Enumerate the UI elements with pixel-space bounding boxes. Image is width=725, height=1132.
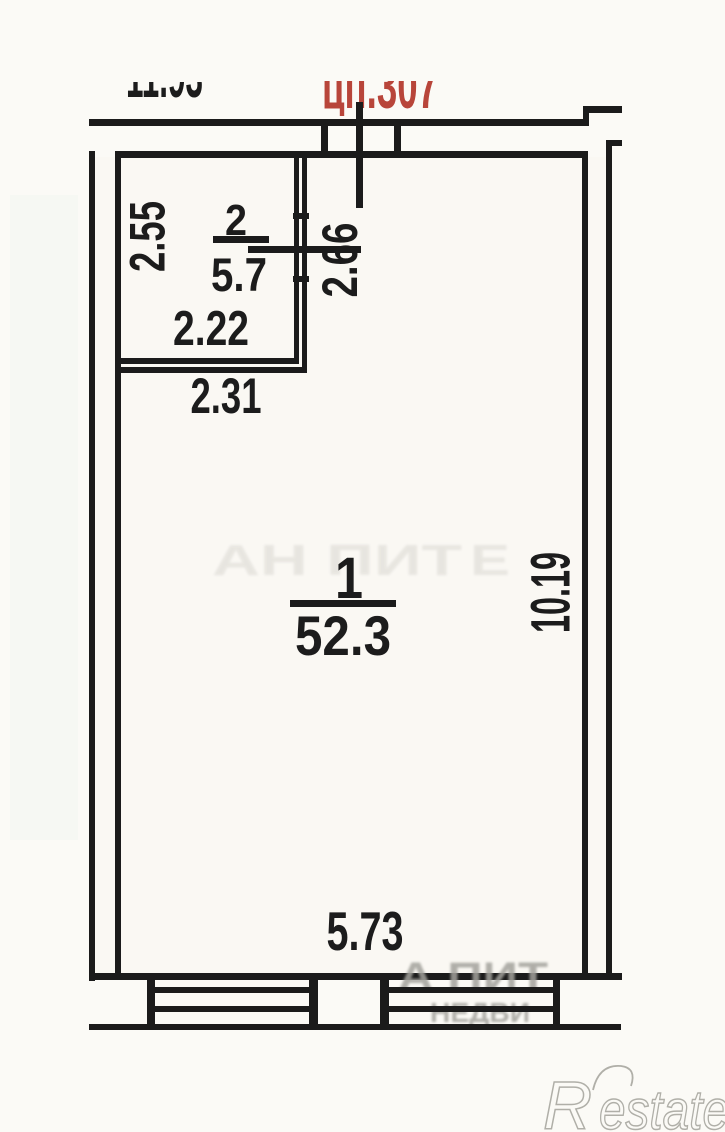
svg-text:НЕДВИ: НЕДВИ [430, 997, 530, 1028]
svg-text:R: R [543, 1068, 592, 1132]
svg-text:2.55: 2.55 [120, 201, 176, 272]
svg-text:Е: Е [470, 536, 510, 585]
svg-text:2.66: 2.66 [312, 223, 368, 298]
svg-text:2.31: 2.31 [191, 368, 262, 424]
svg-text:5.73: 5.73 [327, 900, 404, 962]
svg-text:2.22: 2.22 [173, 302, 249, 356]
svg-text:estate: estate [599, 1078, 725, 1132]
svg-text:52.3: 52.3 [295, 604, 391, 667]
svg-text:10.19: 10.19 [519, 552, 582, 633]
svg-text:5.7: 5.7 [211, 248, 267, 301]
